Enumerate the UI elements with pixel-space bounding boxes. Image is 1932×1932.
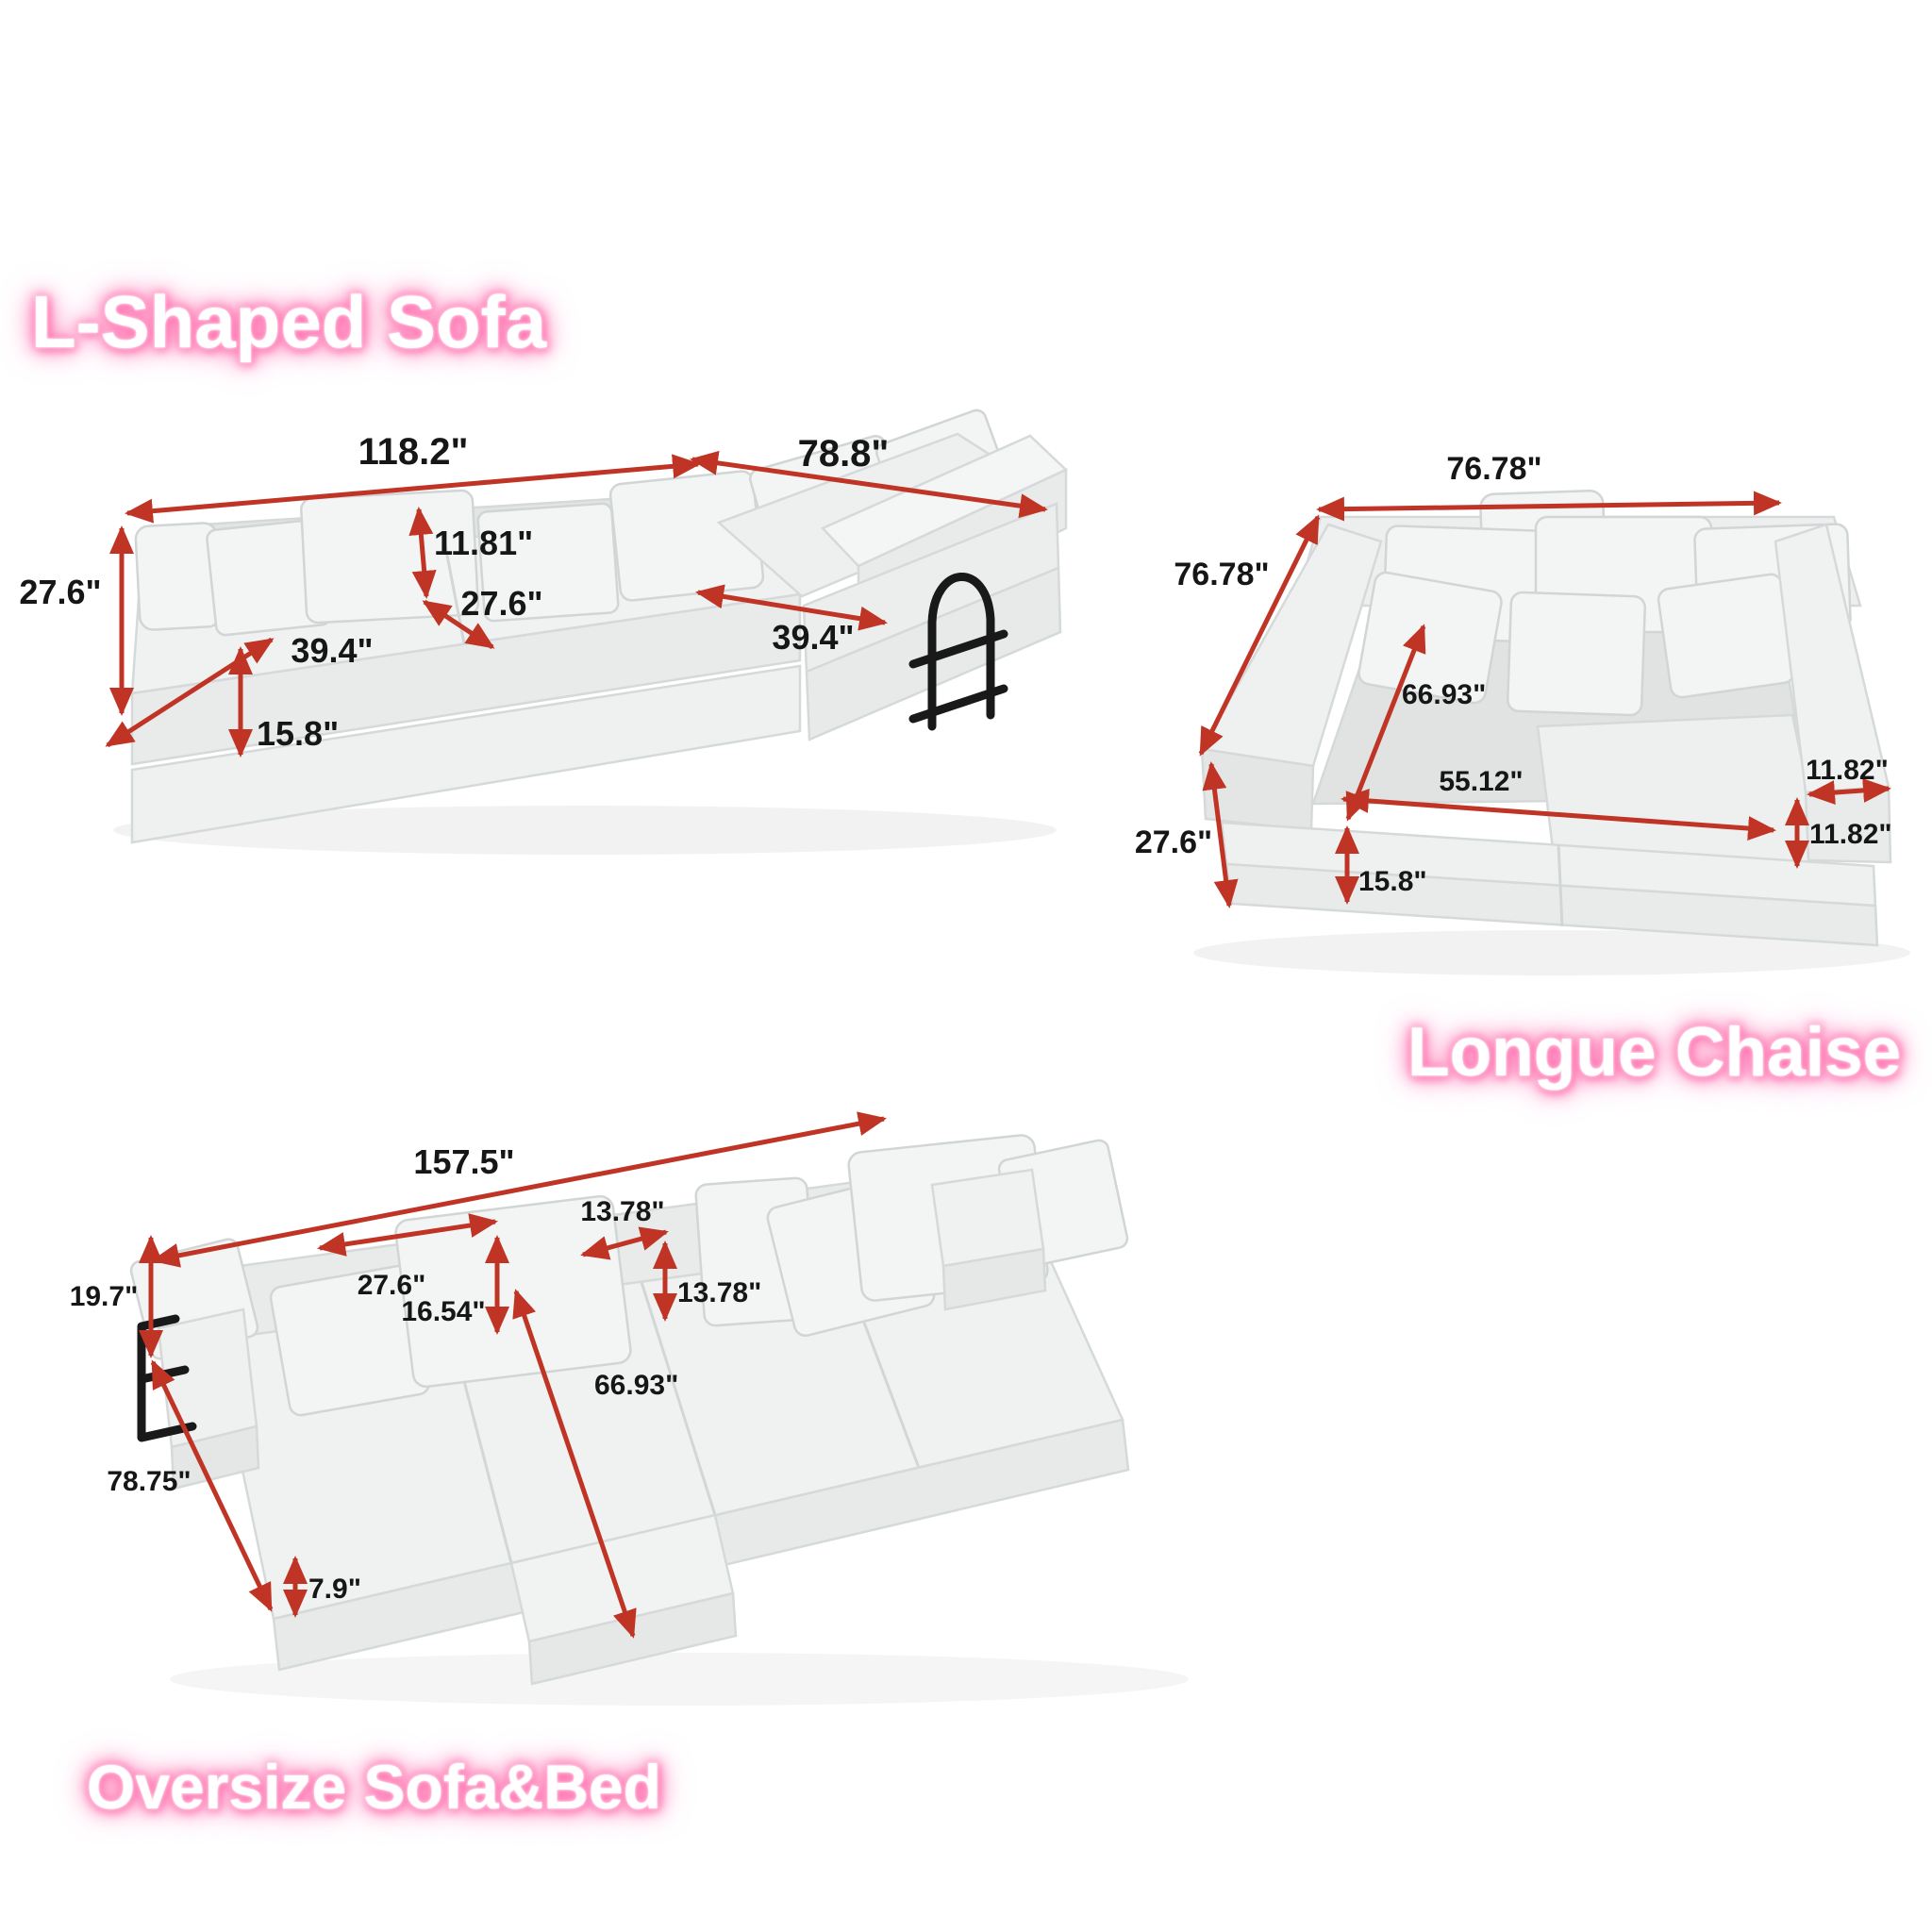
dim-label-back-height: 19.7" xyxy=(70,1281,139,1312)
dim-label-oversize-length: 157.5" xyxy=(413,1142,514,1181)
diagram-stage: 118.2" 78.8" 11.81" 27.6" 27.6" 39.4" 39… xyxy=(0,0,1932,1932)
dim-label-small-cushion-width: 13.78" xyxy=(580,1196,664,1227)
dim-label-bed-diagonal: 66.93" xyxy=(594,1370,678,1401)
section-title-oversize-sofa-bed: Oversize Sofa&Bed xyxy=(87,1751,661,1823)
dim-label-chaise-seat-width: 39.4" xyxy=(772,618,854,657)
section-title-l-shaped-sofa: L-Shaped Sofa xyxy=(31,279,546,365)
dim-label-overall-height: 27.6" xyxy=(19,573,101,611)
dim-label-armrest-width: 11.82" xyxy=(1806,755,1889,786)
dim-label-chaise-overall-height: 27.6" xyxy=(1135,824,1212,860)
dim-label-back-cushion-height: 11.81" xyxy=(434,524,533,562)
dim-label-overall-width: 76.78" xyxy=(1446,451,1541,487)
pillow xyxy=(1657,573,1796,698)
dim-label-base-height: 15.8" xyxy=(257,714,339,753)
dim-label-oversize-depth: 78.75" xyxy=(107,1466,191,1497)
dim-label-inner-width: 55.12" xyxy=(1439,766,1523,797)
product-dimension-diagram-page: { "colors": { "background": "#ffffff", "… xyxy=(0,0,1932,1932)
dim-label-seat-width: 39.4" xyxy=(291,631,373,670)
pillow xyxy=(1507,592,1645,716)
dim-label-chaise-base-height: 15.8" xyxy=(1358,866,1427,897)
dim-label-inner-diagonal: 66.93" xyxy=(1402,679,1486,710)
section-title-longue-chaise: Longue Chaise xyxy=(1407,1013,1901,1091)
dim-label-return-length: 78.8" xyxy=(798,433,890,475)
dim-label-mattress-height: 7.9" xyxy=(308,1574,361,1605)
dim-label-overall-length: 118.2" xyxy=(358,431,469,473)
dim-label-armrest-height: 11.82" xyxy=(1809,819,1892,850)
dim-label-small-cushion-height: 13.78" xyxy=(677,1277,761,1308)
longue-chaise-illustration xyxy=(1193,491,1910,975)
dim-label-back-cushion-height: 16.54" xyxy=(401,1296,485,1327)
dim-label-seat-depth: 27.6" xyxy=(460,584,542,623)
dim-arrow-overall-width xyxy=(1319,503,1779,509)
dim-label-overall-depth: 76.78" xyxy=(1174,557,1269,592)
